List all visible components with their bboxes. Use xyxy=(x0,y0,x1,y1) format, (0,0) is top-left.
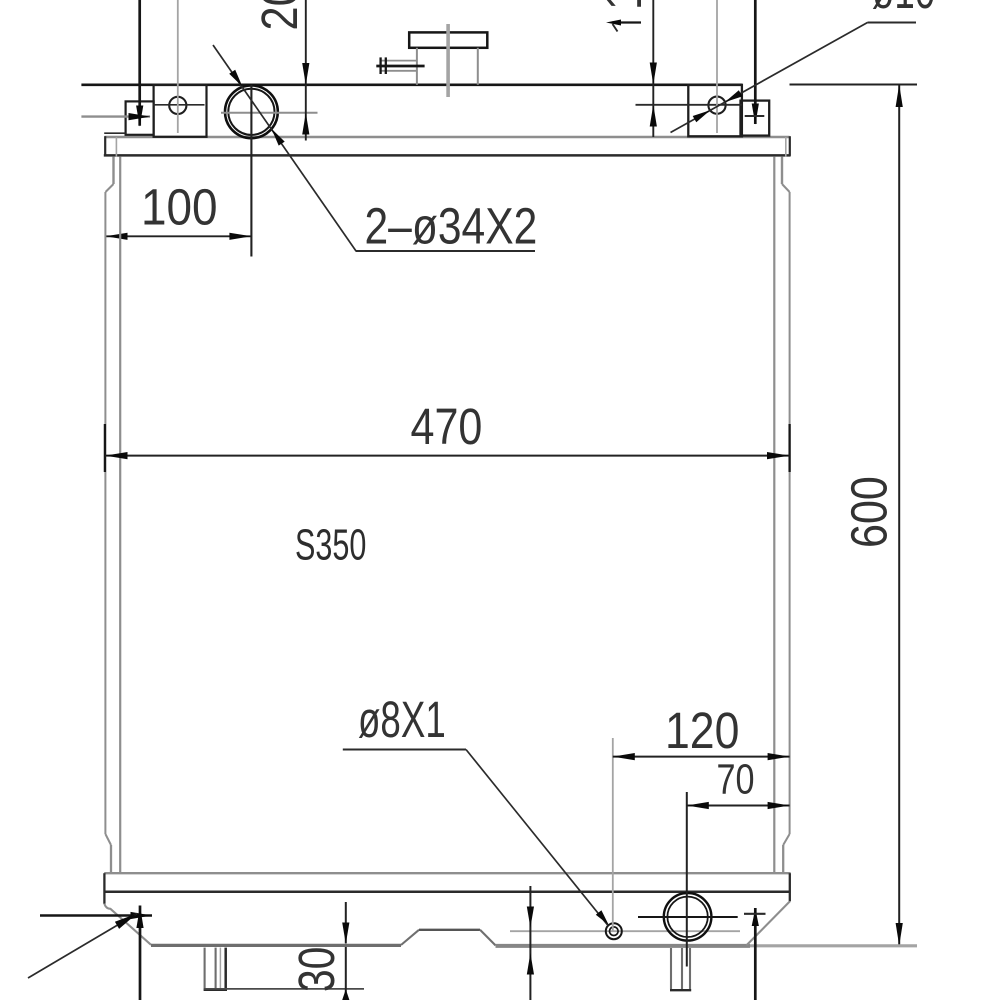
svg-text:120: 120 xyxy=(665,703,739,759)
svg-text:S350: S350 xyxy=(295,521,366,570)
svg-text:15: 15 xyxy=(596,0,653,10)
svg-text:100: 100 xyxy=(141,179,218,236)
svg-text:70: 70 xyxy=(717,756,755,804)
svg-text:470: 470 xyxy=(411,399,483,456)
svg-text:ø8X1: ø8X1 xyxy=(358,692,446,748)
svg-text:30: 30 xyxy=(288,947,345,992)
svg-text:2–ø34X2: 2–ø34X2 xyxy=(365,197,538,255)
svg-text:ø10: ø10 xyxy=(872,0,935,19)
svg-text:20: 20 xyxy=(252,0,309,30)
svg-text:600: 600 xyxy=(841,476,898,548)
